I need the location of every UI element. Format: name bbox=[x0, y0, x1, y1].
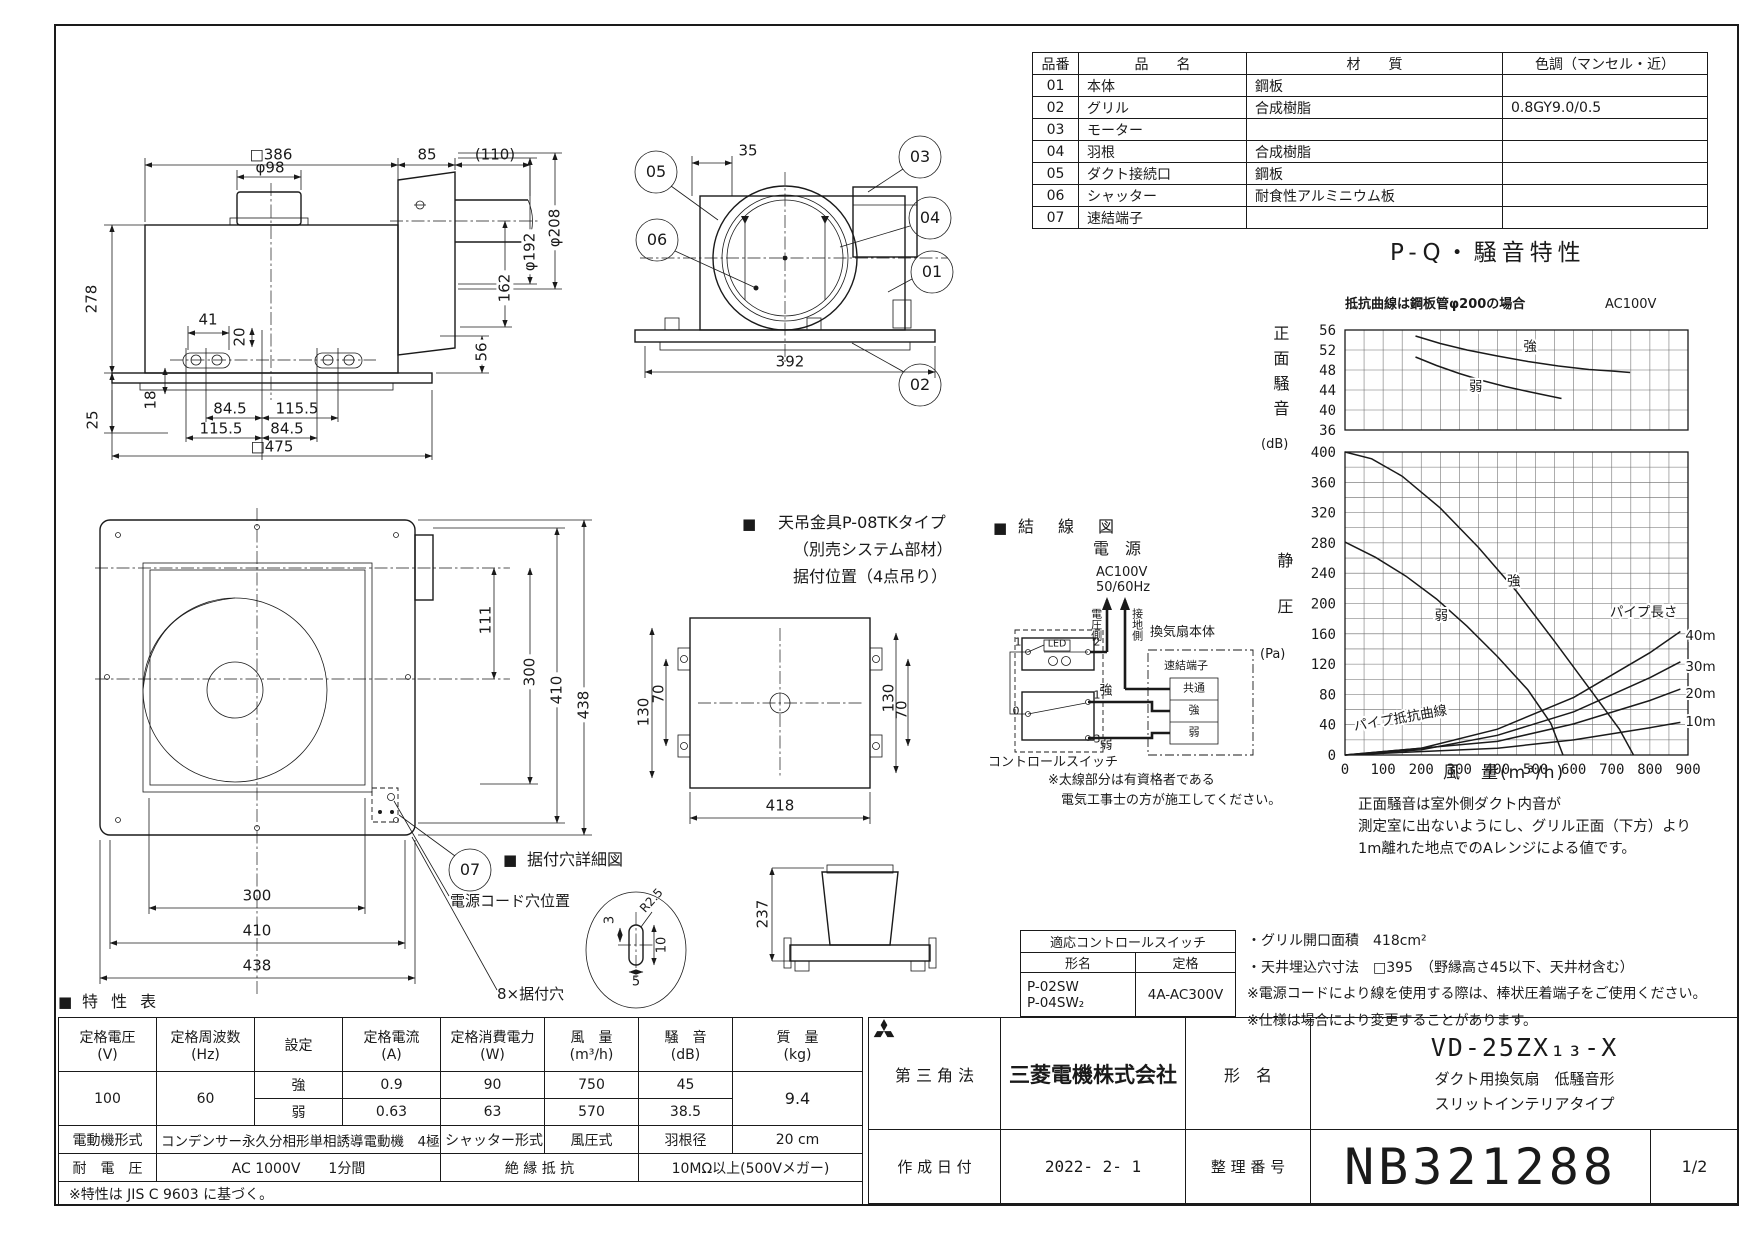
spec-header-row: 定格電圧(V) 定格周波数(Hz) 設定 定格電流(A) 定格消費電力(W) 風… bbox=[59, 1018, 863, 1072]
pq-pressure-axis-unit: (Pa) bbox=[1260, 648, 1285, 663]
balloon-04: 04 bbox=[920, 209, 940, 227]
spec-mass: 9.4 bbox=[733, 1072, 863, 1126]
parts-cell: 02 bbox=[1033, 97, 1079, 119]
spec-header-mass: 質 量(kg) bbox=[733, 1018, 863, 1072]
parts-cell: 鋼板 bbox=[1247, 75, 1503, 97]
dim-bottom-v410: 410 bbox=[548, 673, 565, 708]
spec-voltage: 100 bbox=[59, 1072, 157, 1126]
curve-label: 強 bbox=[1507, 573, 1521, 589]
parts-header-name: 品 名 bbox=[1079, 53, 1247, 75]
dim-side-35: 35 bbox=[738, 142, 757, 159]
parts-row: 03モーター bbox=[1033, 119, 1708, 141]
bottom-view-drawing bbox=[95, 508, 592, 995]
spec-mode-low: 弱 bbox=[255, 1099, 343, 1126]
title-block-main-row: 第 三 角 法 三菱電機株式会社 形 名 VD-25ZX₁₃-X ダクト用換気扇… bbox=[869, 1018, 1739, 1130]
parts-row: 05ダクト接続口鋼板 bbox=[1033, 163, 1708, 185]
balloon-07: 07 bbox=[460, 861, 480, 879]
mounting-holes-label: 8×据付穴 bbox=[497, 986, 564, 1003]
dim-side-392: 392 bbox=[776, 353, 805, 370]
drawing-sheet: 364044485256強弱04080120160200240280320360… bbox=[0, 0, 1754, 1240]
curve-30m bbox=[1345, 662, 1680, 755]
detail-section-marker: ■ bbox=[503, 852, 517, 869]
parts-cell: 速結端子 bbox=[1079, 207, 1247, 229]
y-tick-label: 360 bbox=[1311, 475, 1336, 491]
spec-footnote: ※特性は JIS C 9603 に基づく。 bbox=[59, 1182, 863, 1206]
spec-section-marker: ■ bbox=[58, 994, 72, 1011]
bracket-section-marker: ■ bbox=[742, 516, 756, 533]
spec-shutter-label: シャッター形式 bbox=[441, 1126, 545, 1154]
balloon-01: 01 bbox=[922, 263, 942, 281]
bracket-title: 天吊金具P-08TKタイプ bbox=[778, 514, 946, 532]
y-tick-label: 120 bbox=[1311, 657, 1336, 673]
control-switch-models: P-02SW P-04SW₂ bbox=[1021, 973, 1136, 1017]
title-block-date-row: 作 成 日 付 2022- 2- 1 整 理 番 号 NB321288 1/2 bbox=[869, 1130, 1739, 1204]
parts-cell: 鋼板 bbox=[1247, 163, 1503, 185]
spec-motor-label: 電動機形式 bbox=[59, 1126, 157, 1154]
x-tick-label: 700 bbox=[1599, 762, 1624, 778]
wiring-wire-low-label: 弱 bbox=[1099, 739, 1112, 754]
wiring-control-switch-label: コントロールスイッチ bbox=[988, 756, 1118, 771]
y-tick-label: 240 bbox=[1311, 566, 1336, 582]
model-label: 形 名 bbox=[1186, 1018, 1311, 1130]
spec-header-current: 定格電流(A) bbox=[343, 1018, 441, 1072]
pq-footnote-line1: 正面騒音は室外側ダクト内音が bbox=[1358, 794, 1754, 816]
wiring-voltage: AC100V bbox=[1096, 566, 1147, 581]
spec-blade-value: 20 cm bbox=[733, 1126, 863, 1154]
x-tick-label: 100 bbox=[1370, 762, 1395, 778]
doc-number: NB321288 bbox=[1311, 1130, 1651, 1204]
parts-cell: 07 bbox=[1033, 207, 1079, 229]
spec-header-freq: 定格周波数(Hz) bbox=[157, 1018, 255, 1072]
parts-cell: 羽根 bbox=[1079, 141, 1247, 163]
dim-front-110: (110) bbox=[475, 146, 515, 163]
dim-front-phi98: φ98 bbox=[256, 159, 285, 176]
pq-title: P-Q・騒音特性 bbox=[1390, 240, 1586, 266]
parts-cell: 本体 bbox=[1079, 75, 1247, 97]
spec-mode-high: 強 bbox=[255, 1072, 343, 1099]
spec-row-withstand: 耐 電 圧 AC 1000V 1分間 絶 縁 抵 抗 10MΩ以上(500Vメガ… bbox=[59, 1154, 863, 1182]
dim-front-85: 85 bbox=[417, 146, 436, 163]
spec-insulation-label: 絶 縁 抵 抗 bbox=[441, 1154, 639, 1182]
parts-cell: ダクト接続口 bbox=[1079, 163, 1247, 185]
parts-cell bbox=[1503, 163, 1708, 185]
bracket-drawing bbox=[652, 618, 936, 971]
front-view-drawing bbox=[104, 153, 562, 460]
parts-table: 品番 品 名 材 質 色調（マンセル・近） 01本体鋼板02グリル合成樹脂0.8… bbox=[1032, 52, 1708, 229]
bracket-subtitle1: （別売システム部材） bbox=[793, 541, 953, 559]
control-switch-model-2: P-04SW₂ bbox=[1027, 995, 1131, 1011]
dim-bottom-111: 111 bbox=[477, 606, 494, 635]
dim-front-phi192: φ192 bbox=[521, 230, 538, 275]
parts-cell: 06 bbox=[1033, 185, 1079, 207]
wiring-terminal-common: 共通 bbox=[1183, 683, 1205, 696]
curve-label: 20m bbox=[1685, 686, 1715, 702]
dim-front-pitch-84-5-b: 84.5 bbox=[270, 420, 303, 437]
doc-number-label: 整 理 番 号 bbox=[1186, 1130, 1311, 1204]
model-type-2: スリットインテリアタイプ bbox=[1315, 1093, 1734, 1114]
y-tick-label: 44 bbox=[1319, 383, 1336, 399]
balloon-03: 03 bbox=[910, 148, 930, 166]
model-number: VD-25ZX₁₃-X bbox=[1315, 1033, 1734, 1062]
spec-withstand-value: AC 1000V 1分間 bbox=[157, 1154, 441, 1182]
parts-cell: シャッター bbox=[1079, 185, 1247, 207]
parts-row: 06シャッター耐食性アルミニウム板 bbox=[1033, 185, 1708, 207]
creation-date: 2022- 2- 1 bbox=[1001, 1130, 1186, 1204]
dim-bracket-418: 418 bbox=[766, 797, 795, 814]
control-switch-table: 適応コントロールスイッチ 形名 定格 P-02SW P-04SW₂ 4A-AC3… bbox=[1020, 930, 1236, 1017]
parts-cell: 01 bbox=[1033, 75, 1079, 97]
spec-row-motor: 電動機形式 コンデンサー永久分相形単相誘導電動機 4極 シャッター形式 風圧式 … bbox=[59, 1126, 863, 1154]
parts-cell bbox=[1503, 119, 1708, 141]
curve-label: 10m bbox=[1685, 714, 1715, 730]
dim-front-20: 20 bbox=[231, 327, 248, 346]
wiring-frequency: 50/60Hz bbox=[1096, 581, 1150, 596]
dim-bottom-h410: 410 bbox=[243, 922, 272, 939]
y-tick-label: 52 bbox=[1319, 343, 1336, 359]
power-cord-hole-label: 電源コード穴位置 bbox=[450, 893, 570, 910]
control-switch-rating: 4A-AC300V bbox=[1136, 973, 1236, 1017]
dim-front-56: 56 bbox=[473, 339, 490, 364]
chart-annotation: パイプ長さ bbox=[1610, 604, 1678, 620]
spec-noise-high: 45 bbox=[639, 1072, 733, 1099]
parts-cell: 耐食性アルミニウム板 bbox=[1247, 185, 1503, 207]
parts-cell bbox=[1503, 75, 1708, 97]
curve-label: 30m bbox=[1685, 659, 1715, 675]
spec-blade-label: 羽根径 bbox=[639, 1126, 733, 1154]
spec-row-high: 100 60 強 0.9 90 750 45 9.4 bbox=[59, 1072, 863, 1099]
spec-footnote-row: ※特性は JIS C 9603 に基づく。 bbox=[59, 1182, 863, 1206]
spec-header-noise: 騒 音(dB) bbox=[639, 1018, 733, 1072]
y-tick-label: 280 bbox=[1311, 536, 1336, 552]
dim-front-pitch-115-5-a: 115.5 bbox=[276, 400, 319, 417]
parts-cell: 03 bbox=[1033, 119, 1079, 141]
y-tick-label: 40 bbox=[1319, 403, 1336, 419]
dim-front-pitch-84-5-a: 84.5 bbox=[213, 400, 246, 417]
spec-current-low: 0.63 bbox=[343, 1099, 441, 1126]
wiring-terminal-low: 弱 bbox=[1189, 727, 1200, 740]
wiring-note-2: 電気工事士の方が施工してください。 bbox=[1061, 794, 1281, 809]
dim-bracket-left-130: 130 bbox=[635, 698, 652, 727]
parts-cell: 05 bbox=[1033, 163, 1079, 185]
dim-bracket-237: 237 bbox=[754, 900, 771, 929]
parts-cell: モーター bbox=[1079, 119, 1247, 141]
pq-noise-axis-label: 正面騒音 bbox=[1270, 325, 1288, 437]
balloon-05: 05 bbox=[646, 163, 666, 181]
pq-note-duct: 抵抗曲線は鋼板管φ200の場合 bbox=[1345, 298, 1525, 313]
parts-cell bbox=[1503, 185, 1708, 207]
spec-header-voltage: 定格電圧(V) bbox=[59, 1018, 157, 1072]
wiring-ground-side-label: 接地側 bbox=[1130, 608, 1143, 664]
wiring-terminal-no-1: 1 bbox=[1015, 637, 1022, 650]
x-tick-label: 900 bbox=[1675, 762, 1700, 778]
wiring-terminal-high: 強 bbox=[1189, 705, 1200, 718]
wiring-wire-high-label: 強 bbox=[1099, 685, 1112, 700]
wiring-power-label: 電 源 bbox=[1093, 540, 1141, 558]
spec-power-high: 90 bbox=[441, 1072, 545, 1099]
spec-shutter-value: 風圧式 bbox=[545, 1126, 639, 1154]
spec-noise-low: 38.5 bbox=[639, 1099, 733, 1126]
dim-front-162: 162 bbox=[496, 271, 513, 306]
parts-row: 04羽根合成樹脂 bbox=[1033, 141, 1708, 163]
y-tick-label: 36 bbox=[1319, 423, 1336, 439]
x-tick-label: 800 bbox=[1637, 762, 1662, 778]
company-cell: 三菱電機株式会社 bbox=[1001, 1018, 1186, 1130]
curve-label: 強 bbox=[1523, 339, 1537, 355]
parts-cell bbox=[1247, 207, 1503, 229]
detail-dim-5: 5 bbox=[632, 976, 640, 991]
balloon-02: 02 bbox=[910, 376, 930, 394]
dim-front-width-475: □475 bbox=[251, 438, 294, 455]
wiring-terminal-no-0: 0 bbox=[1013, 706, 1020, 719]
curve-label: 40m bbox=[1685, 628, 1715, 644]
parts-cell bbox=[1247, 119, 1503, 141]
dim-front-278: 278 bbox=[83, 285, 100, 314]
parts-header-no: 品番 bbox=[1033, 53, 1079, 75]
spec-header-power: 定格消費電力(W) bbox=[441, 1018, 545, 1072]
pq-footnote-line2: 測定室に出ないようにし、グリル正面（下方）より bbox=[1358, 816, 1754, 838]
detail-dim-3: 3 bbox=[604, 916, 619, 924]
dim-bottom-v300: 300 bbox=[521, 655, 538, 690]
date-label: 作 成 日 付 bbox=[869, 1130, 1001, 1204]
dim-bottom-v438: 438 bbox=[575, 688, 592, 723]
dim-bracket-right-70: 70 bbox=[893, 700, 910, 719]
x-tick-label: 200 bbox=[1409, 762, 1434, 778]
x-tick-label: 0 bbox=[1341, 762, 1349, 778]
curve-label: 弱 bbox=[1435, 608, 1449, 624]
parts-cell: 04 bbox=[1033, 141, 1079, 163]
y-tick-label: 48 bbox=[1319, 363, 1336, 379]
spec-withstand-label: 耐 電 圧 bbox=[59, 1154, 157, 1182]
parts-cell: 合成樹脂 bbox=[1247, 141, 1503, 163]
model-cell: VD-25ZX₁₃-X ダクト用換気扇 低騒音形 スリットインテリアタイプ bbox=[1311, 1018, 1739, 1130]
note-power-cord: ※電源コードにより線を使用する際は、棒状圧着端子をご使用ください。 bbox=[1247, 981, 1747, 1008]
control-switch-col-rating: 定格 bbox=[1136, 953, 1236, 973]
pq-chart: 364044485256強弱04080120160200240280320360… bbox=[1260, 318, 1750, 798]
spec-freq: 60 bbox=[157, 1072, 255, 1126]
parts-row: 01本体鋼板 bbox=[1033, 75, 1708, 97]
mounting-hole-detail-drawing bbox=[586, 892, 686, 1008]
spec-airflow-high: 750 bbox=[545, 1072, 639, 1099]
parts-header-color: 色調（マンセル・近） bbox=[1503, 53, 1708, 75]
spec-table: 定格電圧(V) 定格周波数(Hz) 設定 定格電流(A) 定格消費電力(W) 風… bbox=[58, 1017, 863, 1206]
spec-motor-value: コンデンサー永久分相形単相誘導電動機 4極 bbox=[157, 1126, 441, 1154]
control-switch-table-title: 適応コントロールスイッチ bbox=[1021, 931, 1236, 953]
spec-insulation-value: 10MΩ以上(500Vメガー) bbox=[639, 1154, 863, 1182]
spec-section-title: 特 性 表 bbox=[82, 993, 160, 1011]
pq-pressure-axis-label: 静圧 bbox=[1274, 552, 1292, 650]
dim-front-18: 18 bbox=[142, 390, 159, 409]
dim-bracket-left-70: 70 bbox=[650, 684, 667, 703]
wiring-fan-body-label: 換気扇本体 bbox=[1150, 626, 1215, 641]
y-tick-label: 0 bbox=[1328, 748, 1336, 764]
pq-footnote: 正面騒音は室外側ダクト内音が 測定室に出ないようにし、グリル正面（下方）より 1… bbox=[1358, 794, 1754, 860]
y-tick-label: 200 bbox=[1311, 597, 1336, 613]
bracket-subtitle2: 据付位置（4点吊り） bbox=[793, 568, 947, 586]
wiring-led-label: LED bbox=[1048, 640, 1067, 651]
parts-cell bbox=[1503, 207, 1708, 229]
y-tick-label: 40 bbox=[1319, 718, 1336, 734]
model-type-1: ダクト用換気扇 低騒音形 bbox=[1315, 1068, 1734, 1089]
control-switch-model-1: P-02SW bbox=[1027, 979, 1131, 995]
wiring-title: 結 線 図 bbox=[1018, 518, 1118, 536]
parts-header-row: 品番 品 名 材 質 色調（マンセル・近） bbox=[1033, 53, 1708, 75]
dim-front-pitch-115-5-b: 115.5 bbox=[200, 420, 243, 437]
dim-bottom-h438: 438 bbox=[243, 957, 272, 974]
pq-noise-axis-unit: (dB) bbox=[1261, 438, 1288, 453]
wiring-terminal-label: 速結端子 bbox=[1164, 660, 1208, 673]
control-switch-col-model: 形名 bbox=[1021, 953, 1136, 973]
parts-cell bbox=[1503, 141, 1708, 163]
wiring-section-marker: ■ bbox=[993, 520, 1007, 537]
parts-cell: 合成樹脂 bbox=[1247, 97, 1503, 119]
note-ceiling-hole: ・天井埋込穴寸法 □395 （野縁高さ45以下、天井材含む） bbox=[1247, 955, 1747, 982]
title-block: 第 三 角 法 三菱電機株式会社 形 名 VD-25ZX₁₃-X ダクト用換気扇… bbox=[868, 1017, 1739, 1204]
spec-header-setting: 設定 bbox=[255, 1018, 343, 1072]
pq-x-axis-label: 風 量(m³/h) bbox=[1443, 764, 1565, 784]
y-tick-label: 320 bbox=[1311, 506, 1336, 522]
note-grill-area: ・グリル開口面積 418cm² bbox=[1247, 928, 1747, 955]
parts-cell: 0.8GY9.0/0.5 bbox=[1503, 97, 1708, 119]
parts-header-material: 材 質 bbox=[1247, 53, 1503, 75]
dim-front-phi208: φ208 bbox=[546, 206, 563, 251]
balloon-06: 06 bbox=[647, 231, 667, 249]
detail-dim-10: 10 bbox=[656, 937, 671, 954]
chart-annotation: パイプ抵抗曲線 bbox=[1352, 702, 1448, 734]
y-tick-label: 56 bbox=[1319, 323, 1336, 339]
y-tick-label: 160 bbox=[1311, 627, 1336, 643]
company-name: 三菱電機株式会社 bbox=[1009, 1059, 1177, 1089]
curve-label: 弱 bbox=[1469, 379, 1483, 395]
pq-footnote-line3: 1m離れた地点でのAレンジによる値です。 bbox=[1358, 838, 1754, 860]
spec-power-low: 63 bbox=[441, 1099, 545, 1126]
dim-bottom-h300: 300 bbox=[243, 887, 272, 904]
y-tick-label: 400 bbox=[1311, 445, 1336, 461]
pq-note-voltage: AC100V bbox=[1605, 298, 1656, 313]
sheet-number: 1/2 bbox=[1651, 1130, 1739, 1204]
wiring-terminal-no-2: 2 bbox=[1094, 637, 1101, 650]
parts-cell: グリル bbox=[1079, 97, 1247, 119]
parts-row: 02グリル合成樹脂0.8GY9.0/0.5 bbox=[1033, 97, 1708, 119]
dim-front-25: 25 bbox=[84, 410, 101, 429]
parts-row: 07速結端子 bbox=[1033, 207, 1708, 229]
dim-front-41: 41 bbox=[198, 311, 217, 328]
y-tick-label: 80 bbox=[1319, 687, 1336, 703]
spec-header-airflow: 風 量(m³/h) bbox=[545, 1018, 639, 1072]
wiring-note-1: ※太線部分は有資格者である bbox=[1048, 774, 1215, 789]
spec-current-high: 0.9 bbox=[343, 1072, 441, 1099]
curve-40m bbox=[1345, 632, 1680, 756]
spec-airflow-low: 570 bbox=[545, 1099, 639, 1126]
detail-title: 据付穴詳細図 bbox=[527, 851, 623, 869]
